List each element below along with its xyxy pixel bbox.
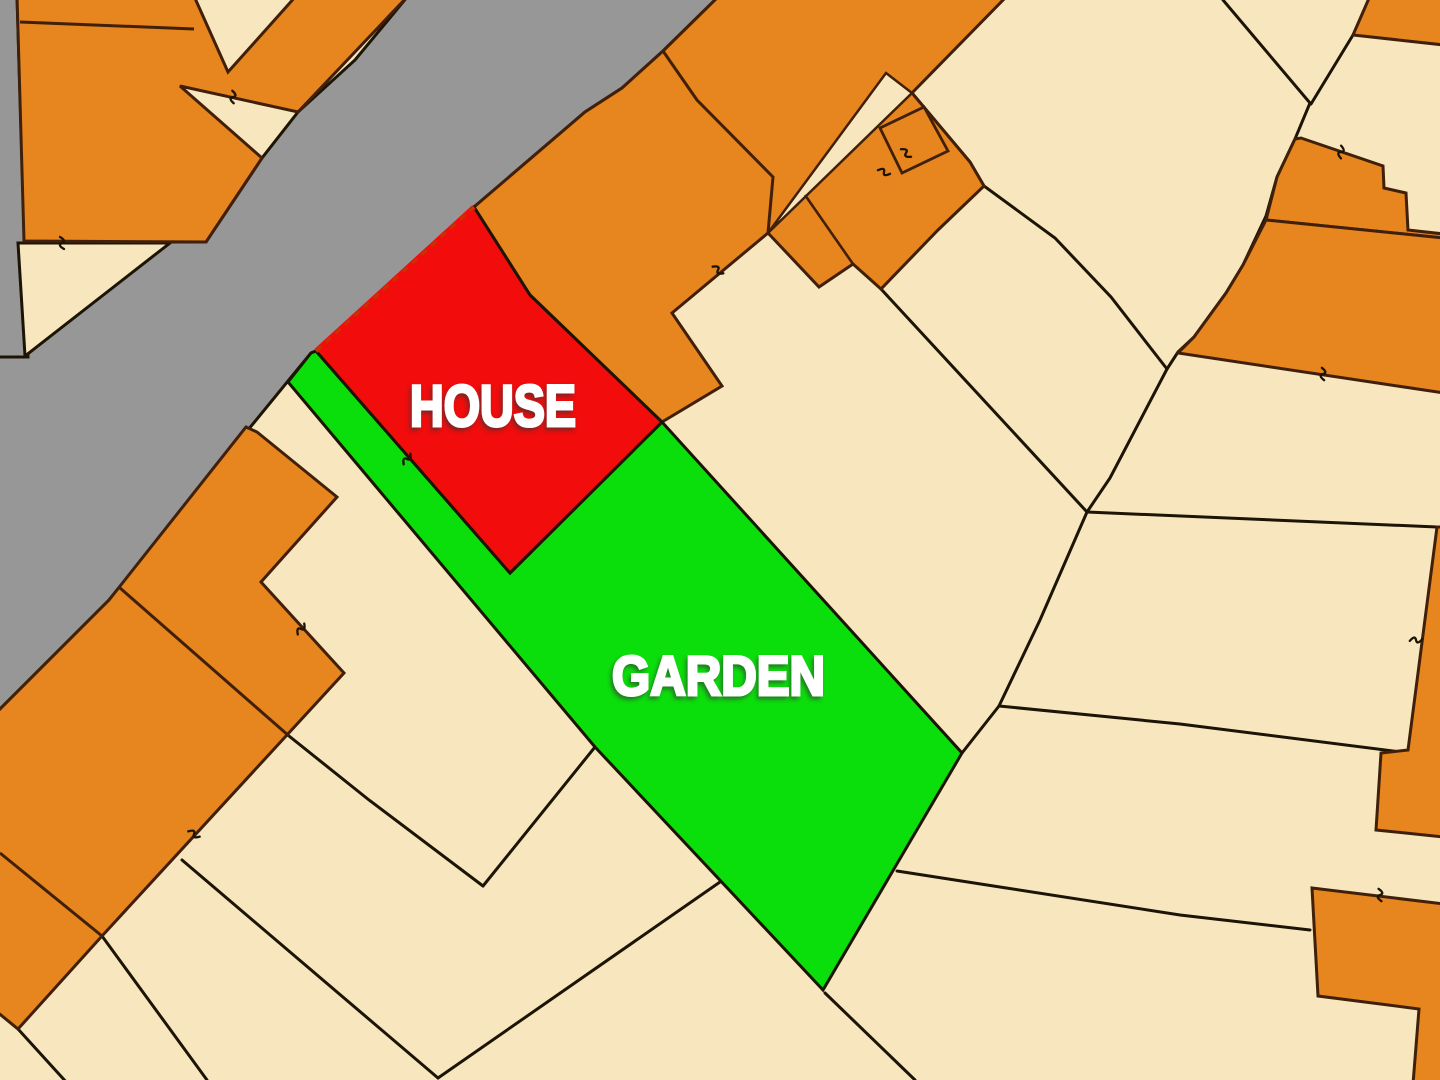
svg-text:HOUSE: HOUSE: [410, 374, 576, 439]
svg-text:GARDEN: GARDEN: [612, 644, 825, 707]
